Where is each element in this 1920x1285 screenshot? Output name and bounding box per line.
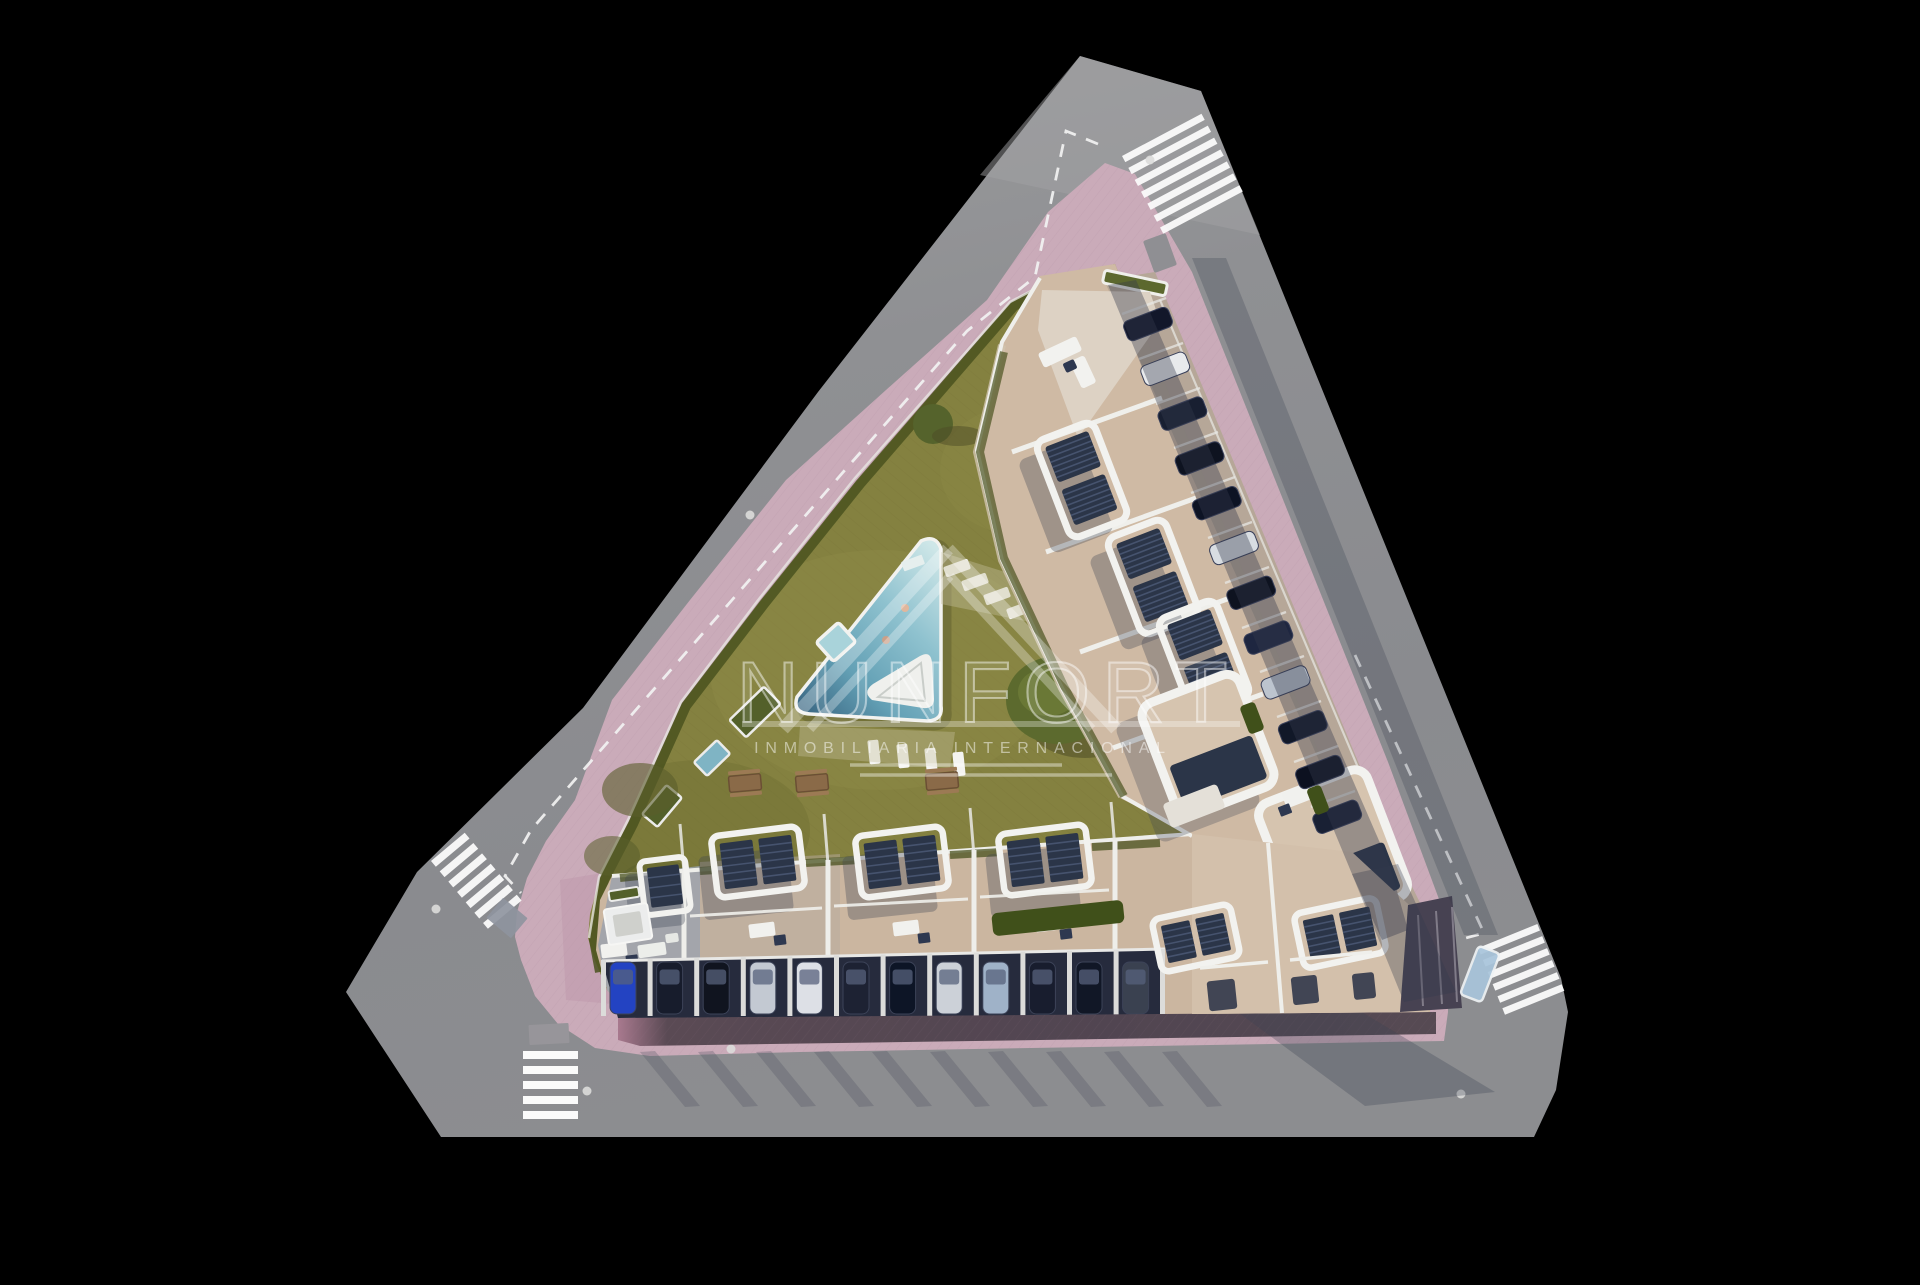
svg-text:NUNFORT: NUNFORT — [737, 645, 1240, 741]
svg-text:INMOBILIARIA INTERNACIONAL: INMOBILIARIA INTERNACIONAL — [754, 740, 1172, 757]
